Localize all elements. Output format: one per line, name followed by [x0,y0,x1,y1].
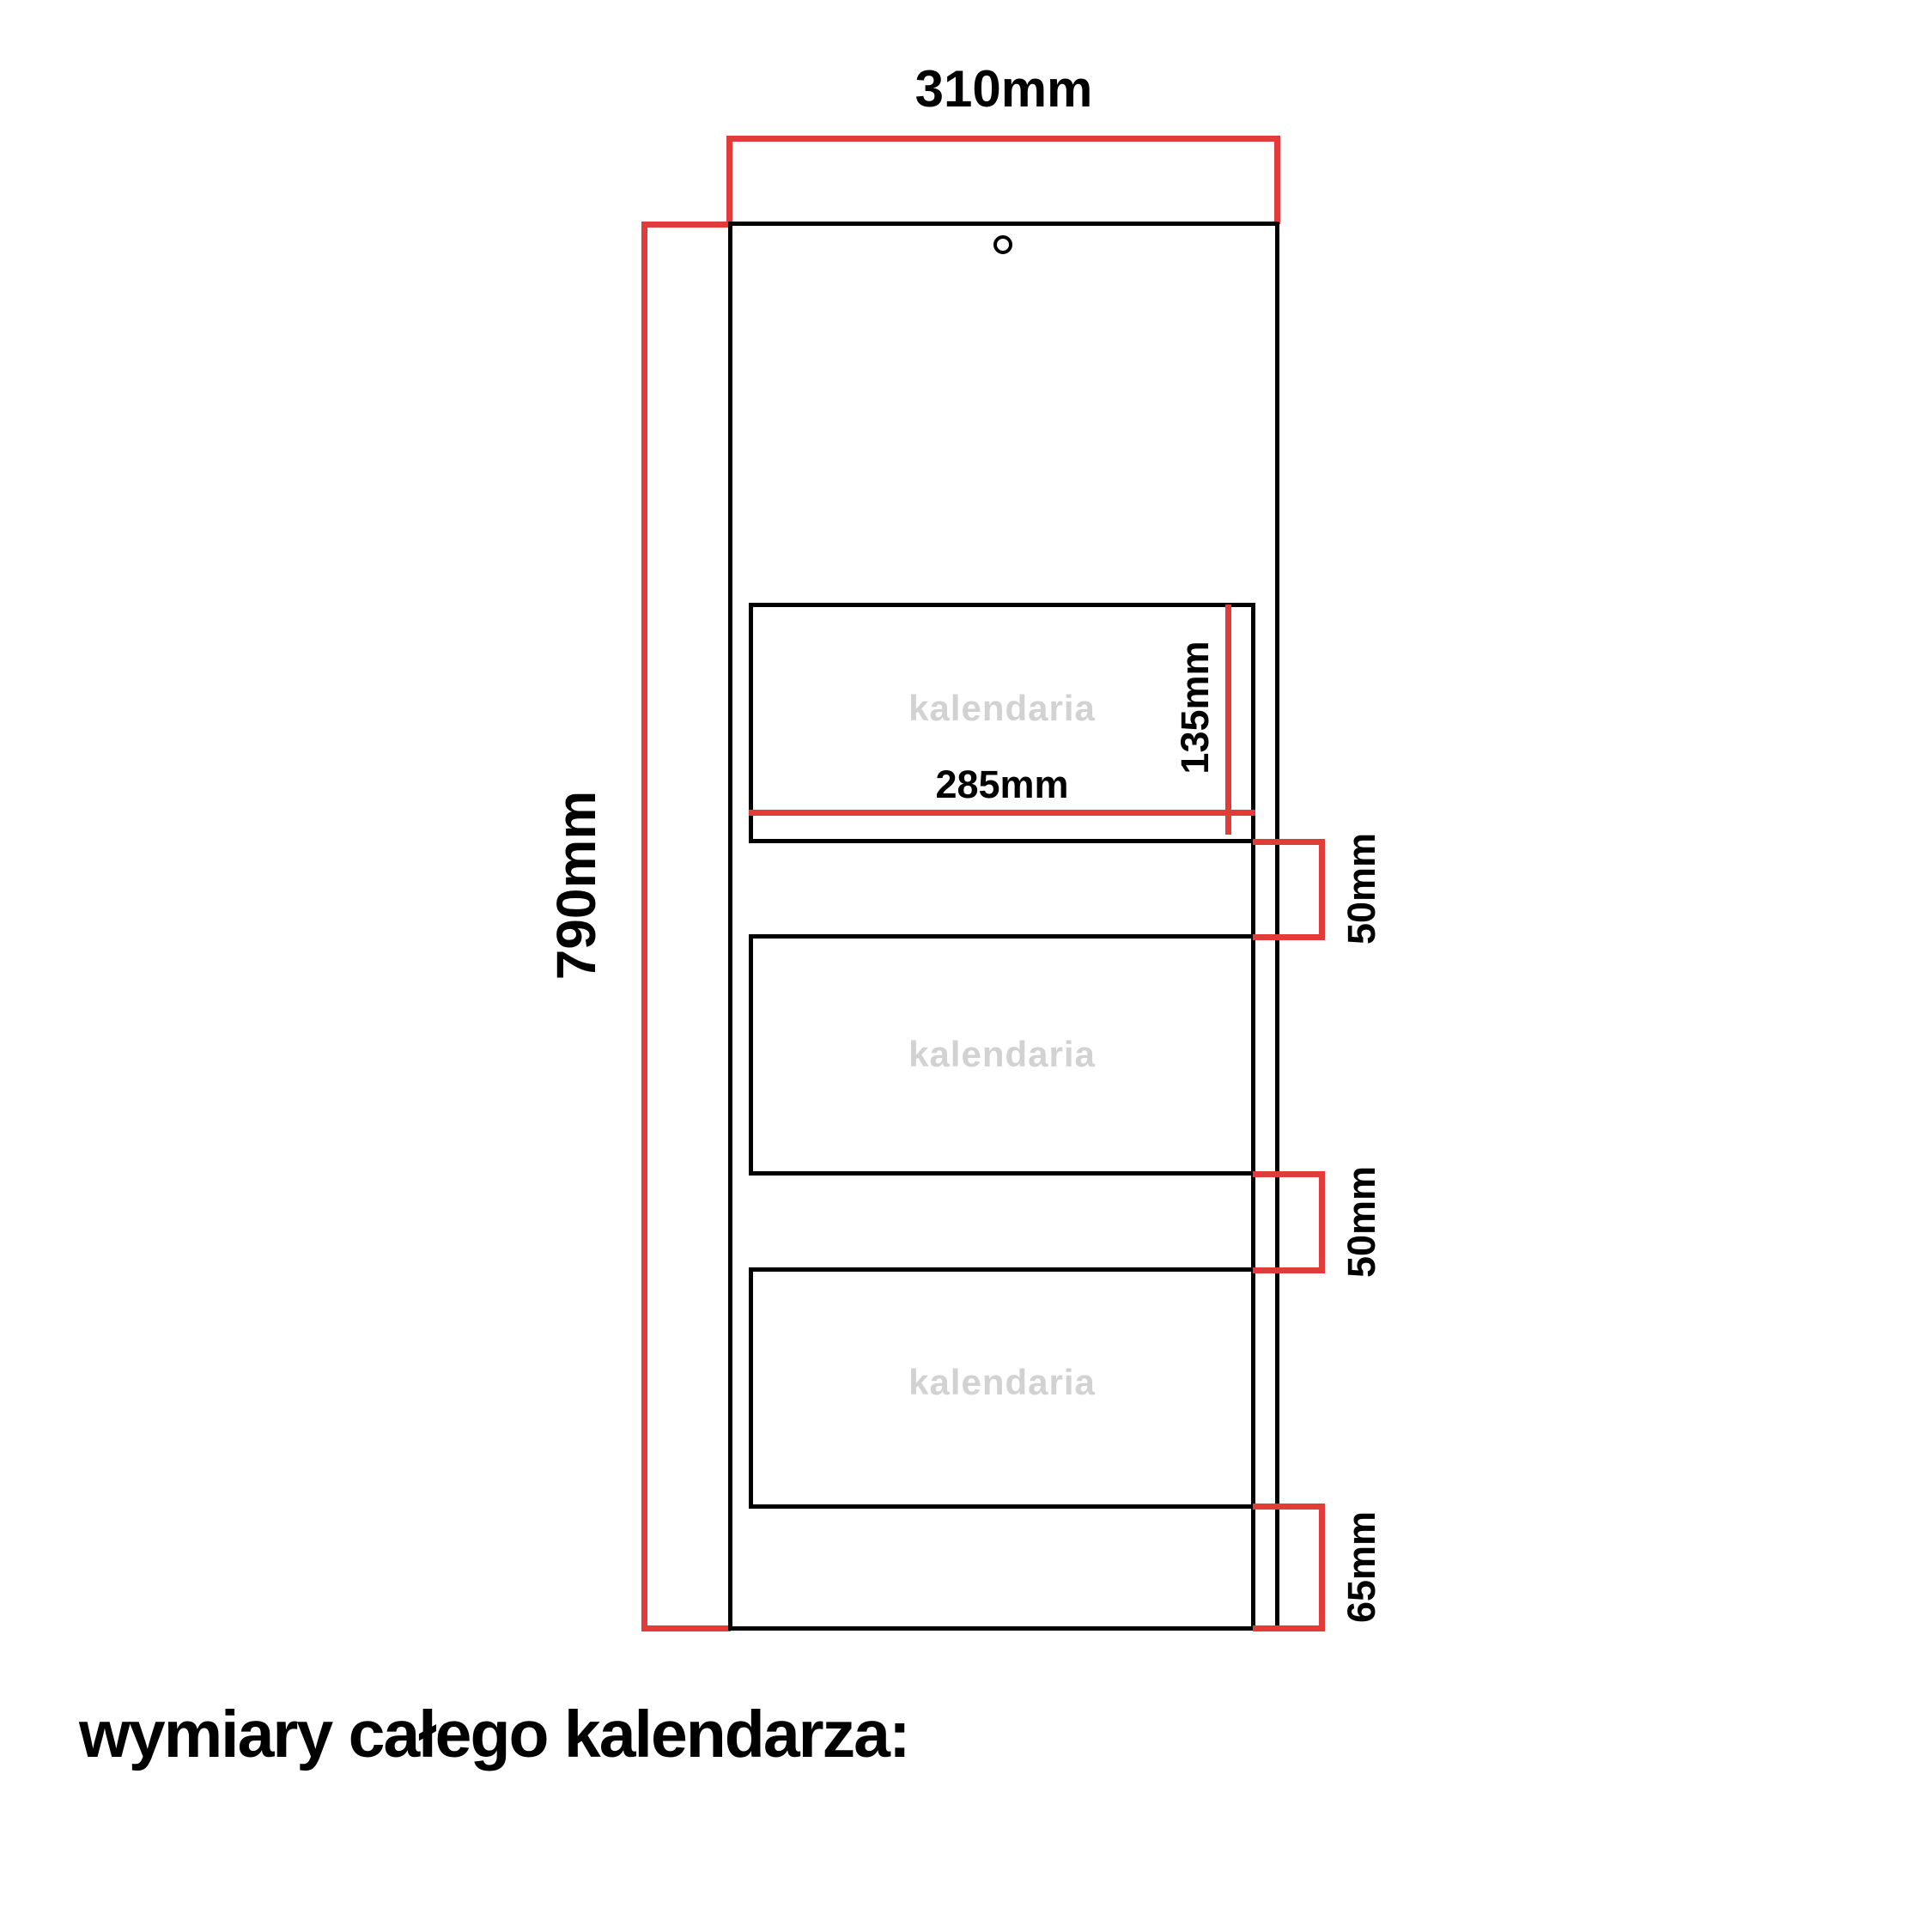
dimension-diagram: 310mm 790mm 285mm 135mm 50mm 50mm 65mm k… [0,0,1932,1932]
bottom-margin-dimension-bracket [1253,1504,1325,1631]
gap2-label: 50mm [1336,1115,1388,1329]
pad3-watermark: kalendaria [749,1358,1255,1406]
bottom-margin-label: 65mm [1336,1460,1388,1674]
hanger-hole [993,235,1012,254]
pad1-watermark: kalendaria [749,684,1255,732]
overall-width-dimension-bracket [726,136,1280,224]
pad2-watermark: kalendaria [749,1030,1255,1078]
gap2-dimension-bracket [1253,1171,1325,1273]
overall-height-label: 790mm [546,756,606,1014]
page-title: wymiary całego kalendarza: [79,1697,909,1773]
overall-height-dimension-bracket [641,222,731,1631]
overall-width-label: 310mm [728,62,1279,115]
gap1-dimension-bracket [1253,839,1325,940]
gap1-label: 50mm [1336,781,1388,996]
